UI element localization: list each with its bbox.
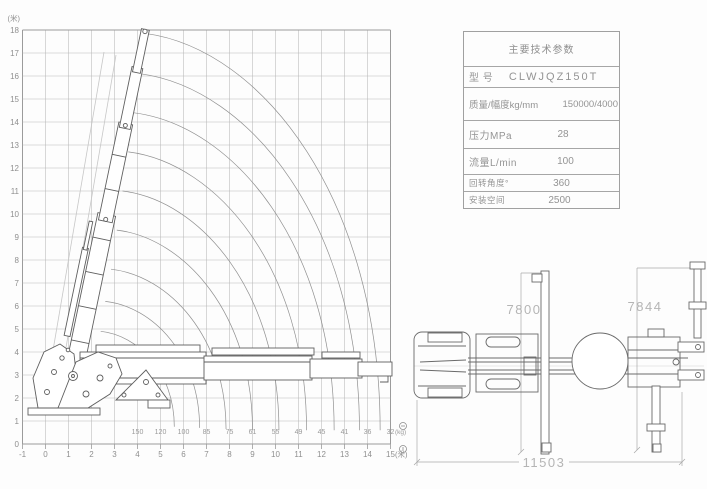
spec-value: CLWJQZ150T <box>493 71 614 83</box>
x-tick-label: 7 <box>204 450 209 459</box>
y-tick-label: 6 <box>15 302 20 311</box>
spec-table-title: 主要技术参数 <box>464 32 619 66</box>
y-tick-label: 3 <box>15 371 20 380</box>
x-tick-label: 8 <box>227 450 232 459</box>
y-tick-label: 16 <box>10 72 19 81</box>
spec-row-pressure: 压力MPa 28 <box>464 120 619 148</box>
spec-value: 2500 <box>505 195 614 206</box>
rear-outriggers <box>647 262 706 452</box>
y-tick-label: 12 <box>10 164 19 173</box>
x-tick-label: 3 <box>112 450 117 459</box>
x-tick-label: 14 <box>363 450 372 459</box>
load-value-label: 61 <box>249 429 257 436</box>
load-value-label: 85 <box>203 429 211 436</box>
spec-row-slew-angle: 回转角度° 360 <box>464 174 619 191</box>
x-tick-label: 1 <box>66 450 71 459</box>
y-tick-label: 15 <box>10 95 19 104</box>
load-value-label: 36 <box>364 429 372 436</box>
crane-spec-sheet: 1817161514131211109876543210 -1012345678… <box>0 0 707 489</box>
y-axis-tick-labels: 1817161514131211109876543210 <box>10 26 19 449</box>
y-tick-label: 13 <box>10 141 19 150</box>
x-tick-label: 10 <box>271 450 280 459</box>
load-value-label: 32 <box>387 429 395 436</box>
spec-label: 回转角度° <box>469 177 509 189</box>
raised-boom <box>58 26 154 371</box>
spec-label: 压力MPa <box>469 127 512 142</box>
x-tick-label: 11 <box>294 450 303 459</box>
truck-top-view: 7800 7844 11503 <box>395 250 707 489</box>
spec-label: 质量/幅度kg/mm <box>469 97 538 111</box>
x-tick-label: 5 <box>158 450 163 459</box>
y-tick-label: 1 <box>15 417 20 426</box>
spec-row-install-space: 安装空间 2500 <box>464 191 619 208</box>
y-tick-label: 17 <box>10 49 19 58</box>
spec-value: 100 <box>517 156 614 167</box>
load-value-label: 55 <box>272 429 280 436</box>
y-tick-label: 10 <box>10 210 19 219</box>
truck-body <box>414 332 688 398</box>
load-value-labels: 150120100857561554945413632 <box>132 429 395 436</box>
y-tick-label: 18 <box>10 26 19 35</box>
load-range-chart: 1817161514131211109876543210 -1012345678… <box>0 0 430 489</box>
spec-value: 150000/4000 <box>563 99 618 110</box>
y-tick-label: 9 <box>15 233 20 242</box>
load-value-label: 100 <box>178 429 190 436</box>
y-tick-label: 11 <box>11 187 20 196</box>
x-tick-label: 12 <box>317 450 326 459</box>
spec-label: 型 号 <box>469 69 493 84</box>
y-tick-label: 0 <box>15 440 20 449</box>
x-tick-label: 2 <box>89 450 94 459</box>
load-value-label: 49 <box>295 429 303 436</box>
load-value-label: 150 <box>132 429 144 436</box>
y-tick-label: 7 <box>15 279 20 288</box>
load-value-label: 120 <box>155 429 167 436</box>
y-axis-unit: (米) <box>8 13 21 23</box>
y-tick-label: 14 <box>10 118 19 127</box>
load-value-label: 41 <box>341 429 349 436</box>
x-tick-label: 13 <box>340 450 349 459</box>
spec-label: 流量L/min <box>469 154 517 169</box>
x-tick-label: 4 <box>135 450 140 459</box>
dimension-rear-label: 7844 <box>628 299 663 314</box>
x-axis-tick-labels: -10123456789101112131415 <box>19 450 396 459</box>
x-tick-label: 0 <box>43 450 48 459</box>
y-tick-label: 2 <box>15 394 20 403</box>
x-tick-label: 6 <box>181 450 186 459</box>
spec-table: 主要技术参数 型 号 CLWJQZ150T 质量/幅度kg/mm 150000/… <box>463 31 620 209</box>
spec-row-model: 型 号 CLWJQZ150T <box>464 66 619 88</box>
y-tick-label: 8 <box>15 256 20 265</box>
front-outrigger <box>532 271 551 454</box>
spec-value: 360 <box>509 178 614 189</box>
slewing-ring <box>572 329 680 389</box>
load-value-label: 45 <box>318 429 326 436</box>
x-tick-label: -1 <box>19 450 27 459</box>
dimension-overall-label: 11503 <box>523 455 566 470</box>
spec-label: 安装空间 <box>469 194 505 206</box>
load-value-label: 75 <box>226 429 234 436</box>
dimension-front-label: 7800 <box>507 302 542 317</box>
annotation-symbols <box>400 423 407 453</box>
y-tick-label: 4 <box>15 348 20 357</box>
y-tick-label: 5 <box>15 325 20 334</box>
spec-value: 28 <box>512 129 614 140</box>
x-tick-label: 9 <box>250 450 255 459</box>
horizontal-boom <box>80 345 392 384</box>
spec-table-title-text: 主要技术参数 <box>509 41 575 56</box>
spec-row-mass-radius: 质量/幅度kg/mm 150000/4000 <box>464 87 619 120</box>
spec-row-flow: 流量L/min 100 <box>464 148 619 175</box>
